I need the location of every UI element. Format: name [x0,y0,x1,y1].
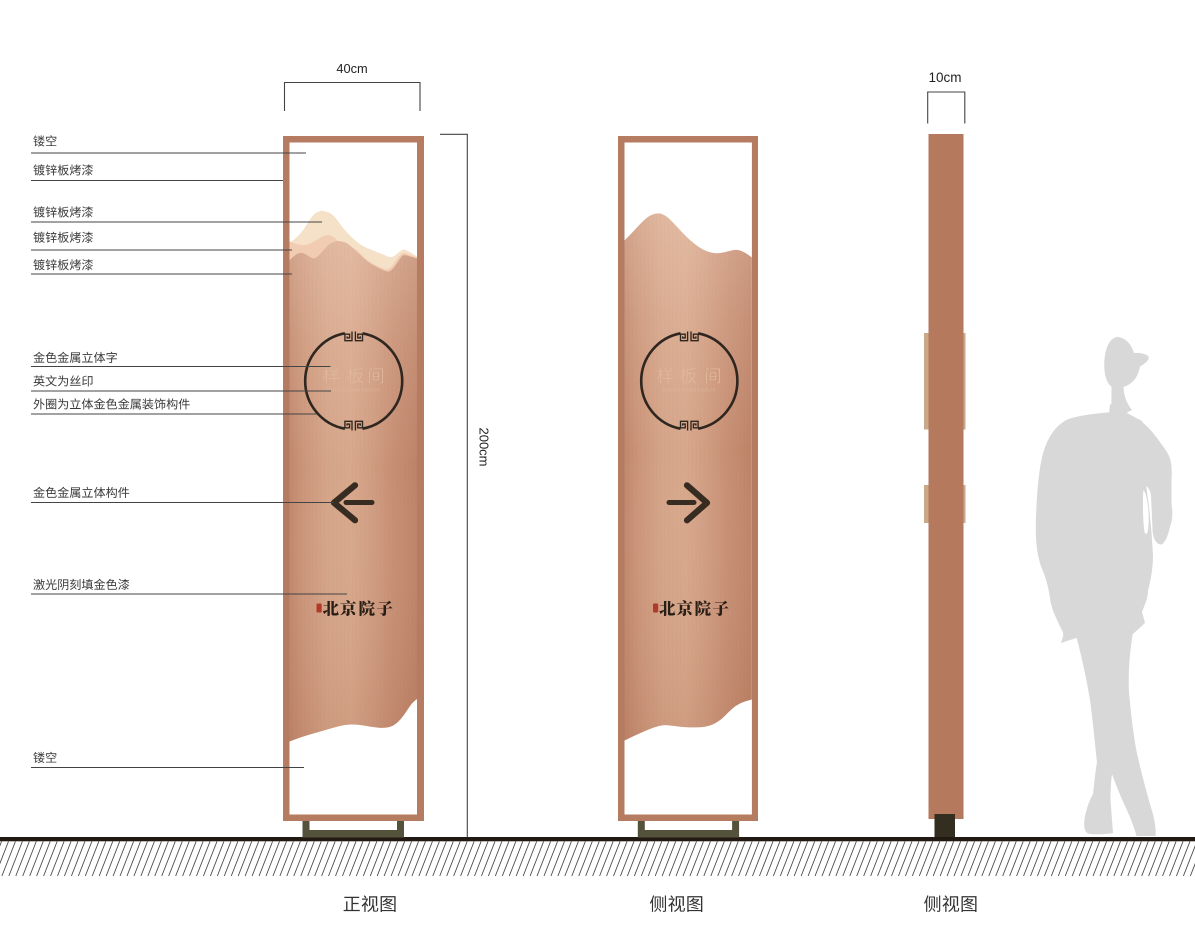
svg-text:SAMPLE ROOM DISPLAY: SAMPLE ROOM DISPLAY [327,388,381,393]
svg-text:40cm: 40cm [336,61,367,76]
svg-text:SAMPLE ROOM DISPLAY: SAMPLE ROOM DISPLAY [663,388,717,393]
svg-text:10cm: 10cm [928,70,961,85]
svg-text:200cm: 200cm [477,427,492,466]
